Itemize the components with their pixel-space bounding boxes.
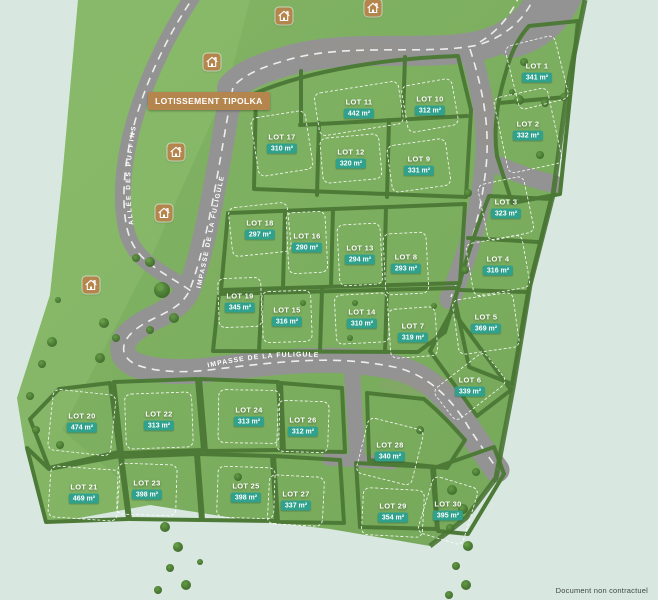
lot-hotspot[interactable]: LOT 24 313 m² xyxy=(234,406,264,427)
lot-hotspot[interactable]: LOT 25 398 m² xyxy=(231,482,261,503)
house-icon xyxy=(168,144,185,161)
lot-hotspot[interactable]: LOT 14 310 m² xyxy=(347,308,377,329)
lot-label: LOT 19 xyxy=(226,292,253,301)
lot-hotspot[interactable]: LOT 9 331 m² xyxy=(404,155,434,176)
lot-area-badge: 293 m² xyxy=(391,264,421,274)
lot-area-badge: 469 m² xyxy=(69,494,99,504)
lot-label: LOT 27 xyxy=(282,490,309,499)
lot-label: LOT 13 xyxy=(346,244,373,253)
lot-hotspot[interactable]: LOT 6 339 m² xyxy=(455,376,485,397)
lot-hotspot[interactable]: LOT 5 369 m² xyxy=(471,313,501,334)
lot-label: LOT 6 xyxy=(459,376,482,385)
lot-hotspot[interactable]: LOT 21 469 m² xyxy=(69,483,99,504)
lot-label: LOT 7 xyxy=(402,322,425,331)
lot-label: LOT 10 xyxy=(416,95,443,104)
lot-hotspot[interactable]: LOT 22 313 m² xyxy=(144,410,174,431)
lot-hotspot[interactable]: LOT 10 312 m² xyxy=(415,95,445,116)
lot-area-badge: 395 m² xyxy=(433,511,463,521)
house-icon xyxy=(156,205,173,222)
lot-hotspot[interactable]: LOT 20 474 m² xyxy=(67,412,97,433)
lot-label: LOT 8 xyxy=(395,253,418,262)
lot-label: LOT 12 xyxy=(337,148,364,157)
lot-label: LOT 29 xyxy=(379,502,406,511)
lot-hotspot[interactable]: LOT 17 310 m² xyxy=(267,133,297,154)
lot-hotspot[interactable]: LOT 11 442 m² xyxy=(344,98,374,119)
lot-label: LOT 28 xyxy=(376,441,403,450)
lot-area-badge: 345 m² xyxy=(225,303,255,313)
house-icon xyxy=(83,277,100,294)
lot-hotspot[interactable]: LOT 8 293 m² xyxy=(391,253,421,274)
lot-area-badge: 290 m² xyxy=(292,243,322,253)
lot-label: LOT 17 xyxy=(268,133,295,142)
lot-area-badge: 310 m² xyxy=(267,144,297,154)
lot-hotspot[interactable]: LOT 1 341 m² xyxy=(522,62,552,83)
lot-label: LOT 3 xyxy=(495,198,518,207)
lot-area-badge: 323 m² xyxy=(491,209,521,219)
house-icon xyxy=(276,8,293,25)
lot-area-badge: 310 m² xyxy=(347,319,377,329)
lot-area-badge: 312 m² xyxy=(415,106,445,116)
lot-area-badge: 313 m² xyxy=(144,421,174,431)
lot-hotspot[interactable]: LOT 19 345 m² xyxy=(225,292,255,313)
lot-label: LOT 16 xyxy=(293,232,320,241)
lot-hotspot[interactable]: LOT 3 323 m² xyxy=(491,198,521,219)
lot-area-badge: 297 m² xyxy=(245,230,275,240)
lot-label: LOT 18 xyxy=(246,219,273,228)
lot-area-badge: 340 m² xyxy=(375,452,405,462)
lot-hotspot[interactable]: LOT 26 312 m² xyxy=(288,416,318,437)
lot-area-badge: 369 m² xyxy=(471,324,501,334)
lot-label: LOT 4 xyxy=(487,255,510,264)
lot-area-badge: 316 m² xyxy=(272,317,302,327)
lot-area-badge: 294 m² xyxy=(345,255,375,265)
lot-label: LOT 15 xyxy=(273,306,300,315)
lot-label: LOT 2 xyxy=(517,120,540,129)
lot-hotspot[interactable]: LOT 4 316 m² xyxy=(483,255,513,276)
lot-hotspot[interactable]: LOT 2 332 m² xyxy=(513,120,543,141)
lot-label: LOT 21 xyxy=(70,483,97,492)
lot-area-badge: 320 m² xyxy=(336,159,366,169)
lot-hotspot[interactable]: LOT 30 395 m² xyxy=(433,500,463,521)
lot-hotspot[interactable]: LOT 12 320 m² xyxy=(336,148,366,169)
lot-area-badge: 337 m² xyxy=(281,501,311,511)
lot-hotspot[interactable]: LOT 15 316 m² xyxy=(272,306,302,327)
lot-area-badge: 312 m² xyxy=(288,427,318,437)
lot-area-badge: 442 m² xyxy=(344,109,374,119)
lot-label: LOT 24 xyxy=(235,406,262,415)
lot-hotspot[interactable]: LOT 18 297 m² xyxy=(245,219,275,240)
lot-area-badge: 331 m² xyxy=(404,166,434,176)
lot-label: LOT 1 xyxy=(526,62,549,71)
lot-label: LOT 26 xyxy=(289,416,316,425)
lot-area-badge: 341 m² xyxy=(522,73,552,83)
lot-area-badge: 332 m² xyxy=(513,131,543,141)
lot-label: LOT 14 xyxy=(348,308,375,317)
lot-area-badge: 398 m² xyxy=(231,493,261,503)
lot-hotspot[interactable]: LOT 16 290 m² xyxy=(292,232,322,253)
lot-hotspot[interactable]: LOT 27 337 m² xyxy=(281,490,311,511)
lot-label: LOT 9 xyxy=(408,155,431,164)
lot-area-badge: 319 m² xyxy=(398,333,428,343)
lot-label: LOT 20 xyxy=(68,412,95,421)
lot-area-badge: 339 m² xyxy=(455,387,485,397)
subdivision-plan-map: ALLÉE DES PUFFINS IMPASSE DE LA FULIGULE… xyxy=(0,0,658,600)
lot-label: LOT 11 xyxy=(346,98,373,107)
lot-area-badge: 398 m² xyxy=(132,490,162,500)
lot-area-badge: 354 m² xyxy=(378,513,408,523)
lot-label: LOT 25 xyxy=(232,482,259,491)
lot-label: LOT 23 xyxy=(133,479,160,488)
lot-label: LOT 30 xyxy=(434,500,461,509)
lot-hotspot[interactable]: LOT 28 340 m² xyxy=(375,441,405,462)
lot-hotspot[interactable]: LOT 13 294 m² xyxy=(345,244,375,265)
lot-area-badge: 474 m² xyxy=(67,423,97,433)
lot-label: LOT 5 xyxy=(475,313,498,322)
lot-area-badge: 313 m² xyxy=(234,417,264,427)
house-icon xyxy=(365,0,382,17)
lot-hotspot[interactable]: LOT 23 398 m² xyxy=(132,479,162,500)
lot-hotspot[interactable]: LOT 29 354 m² xyxy=(378,502,408,523)
lot-hotspot[interactable]: LOT 7 319 m² xyxy=(398,322,428,343)
house-icon xyxy=(204,54,221,71)
lot-label: LOT 22 xyxy=(145,410,172,419)
lot-area-badge: 316 m² xyxy=(483,266,513,276)
plan-title-badge: LOTISSEMENT TIPOLKA xyxy=(148,92,270,110)
disclaimer-note: Document non contractuel xyxy=(556,586,648,595)
